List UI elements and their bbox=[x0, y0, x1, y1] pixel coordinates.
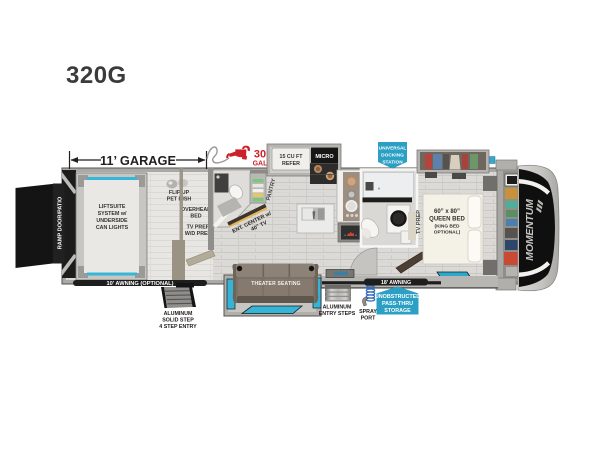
svg-text:STATION: STATION bbox=[382, 160, 403, 166]
svg-text:PET DISH: PET DISH bbox=[167, 197, 192, 203]
svg-text:RAMP DOOR/PATIO: RAMP DOOR/PATIO bbox=[58, 196, 64, 249]
svg-text:MICRO: MICRO bbox=[315, 154, 334, 160]
svg-text:W/D PREP: W/D PREP bbox=[185, 231, 212, 237]
svg-text:10’ AWNING (OPTIONAL): 10’ AWNING (OPTIONAL) bbox=[106, 281, 173, 287]
svg-text:UNDERSIDE: UNDERSIDE bbox=[96, 218, 128, 224]
svg-text:GAL: GAL bbox=[253, 161, 269, 168]
svg-text:SPRAY: SPRAY bbox=[359, 309, 377, 315]
svg-text:18’ AWNING: 18’ AWNING bbox=[381, 280, 411, 286]
svg-text:PASS-THRU: PASS-THRU bbox=[382, 301, 413, 307]
svg-text:FLIP UP: FLIP UP bbox=[169, 190, 190, 196]
svg-text:OPTIONAL): OPTIONAL) bbox=[434, 230, 461, 236]
svg-text:THEATER SEATING: THEATER SEATING bbox=[251, 281, 300, 287]
svg-text:4 STEP ENTRY: 4 STEP ENTRY bbox=[159, 324, 197, 330]
svg-text:STORAGE: STORAGE bbox=[384, 308, 411, 314]
svg-text:PORT: PORT bbox=[361, 316, 376, 322]
svg-text:320G: 320G bbox=[66, 62, 127, 89]
svg-text:UNOBSTRUCTED: UNOBSTRUCTED bbox=[375, 294, 420, 300]
svg-text:TV PREP: TV PREP bbox=[416, 210, 422, 234]
svg-text:15 CU FT: 15 CU FT bbox=[280, 154, 304, 160]
svg-text:BED: BED bbox=[190, 214, 201, 220]
svg-text:ALUMINUM: ALUMINUM bbox=[323, 305, 352, 311]
svg-text:30: 30 bbox=[254, 149, 266, 161]
svg-text:(KING BED: (KING BED bbox=[434, 224, 460, 230]
svg-text:SYSTEM w/: SYSTEM w/ bbox=[98, 211, 127, 217]
svg-text:ENTRY STEPS: ENTRY STEPS bbox=[319, 311, 356, 317]
svg-text:QUEEN BED: QUEEN BED bbox=[429, 217, 465, 223]
svg-text:UNIVERSAL: UNIVERSAL bbox=[379, 146, 407, 152]
svg-text:LIFTSUITE: LIFTSUITE bbox=[99, 204, 126, 210]
svg-text:SOLID STEP: SOLID STEP bbox=[162, 318, 194, 324]
svg-text:60” x 80”: 60” x 80” bbox=[434, 209, 460, 215]
svg-text:11’ GARAGE: 11’ GARAGE bbox=[100, 153, 177, 168]
svg-text:MOMENTUM: MOMENTUM bbox=[524, 199, 536, 261]
svg-text:DOCKING: DOCKING bbox=[381, 153, 404, 159]
svg-text:REFER: REFER bbox=[282, 161, 300, 167]
svg-text:OVERHEAD: OVERHEAD bbox=[181, 207, 211, 213]
svg-text:TV PREP: TV PREP bbox=[187, 225, 210, 231]
svg-text:ALUMINUM: ALUMINUM bbox=[164, 311, 193, 317]
svg-text:CAN LIGHTS: CAN LIGHTS bbox=[96, 225, 129, 231]
